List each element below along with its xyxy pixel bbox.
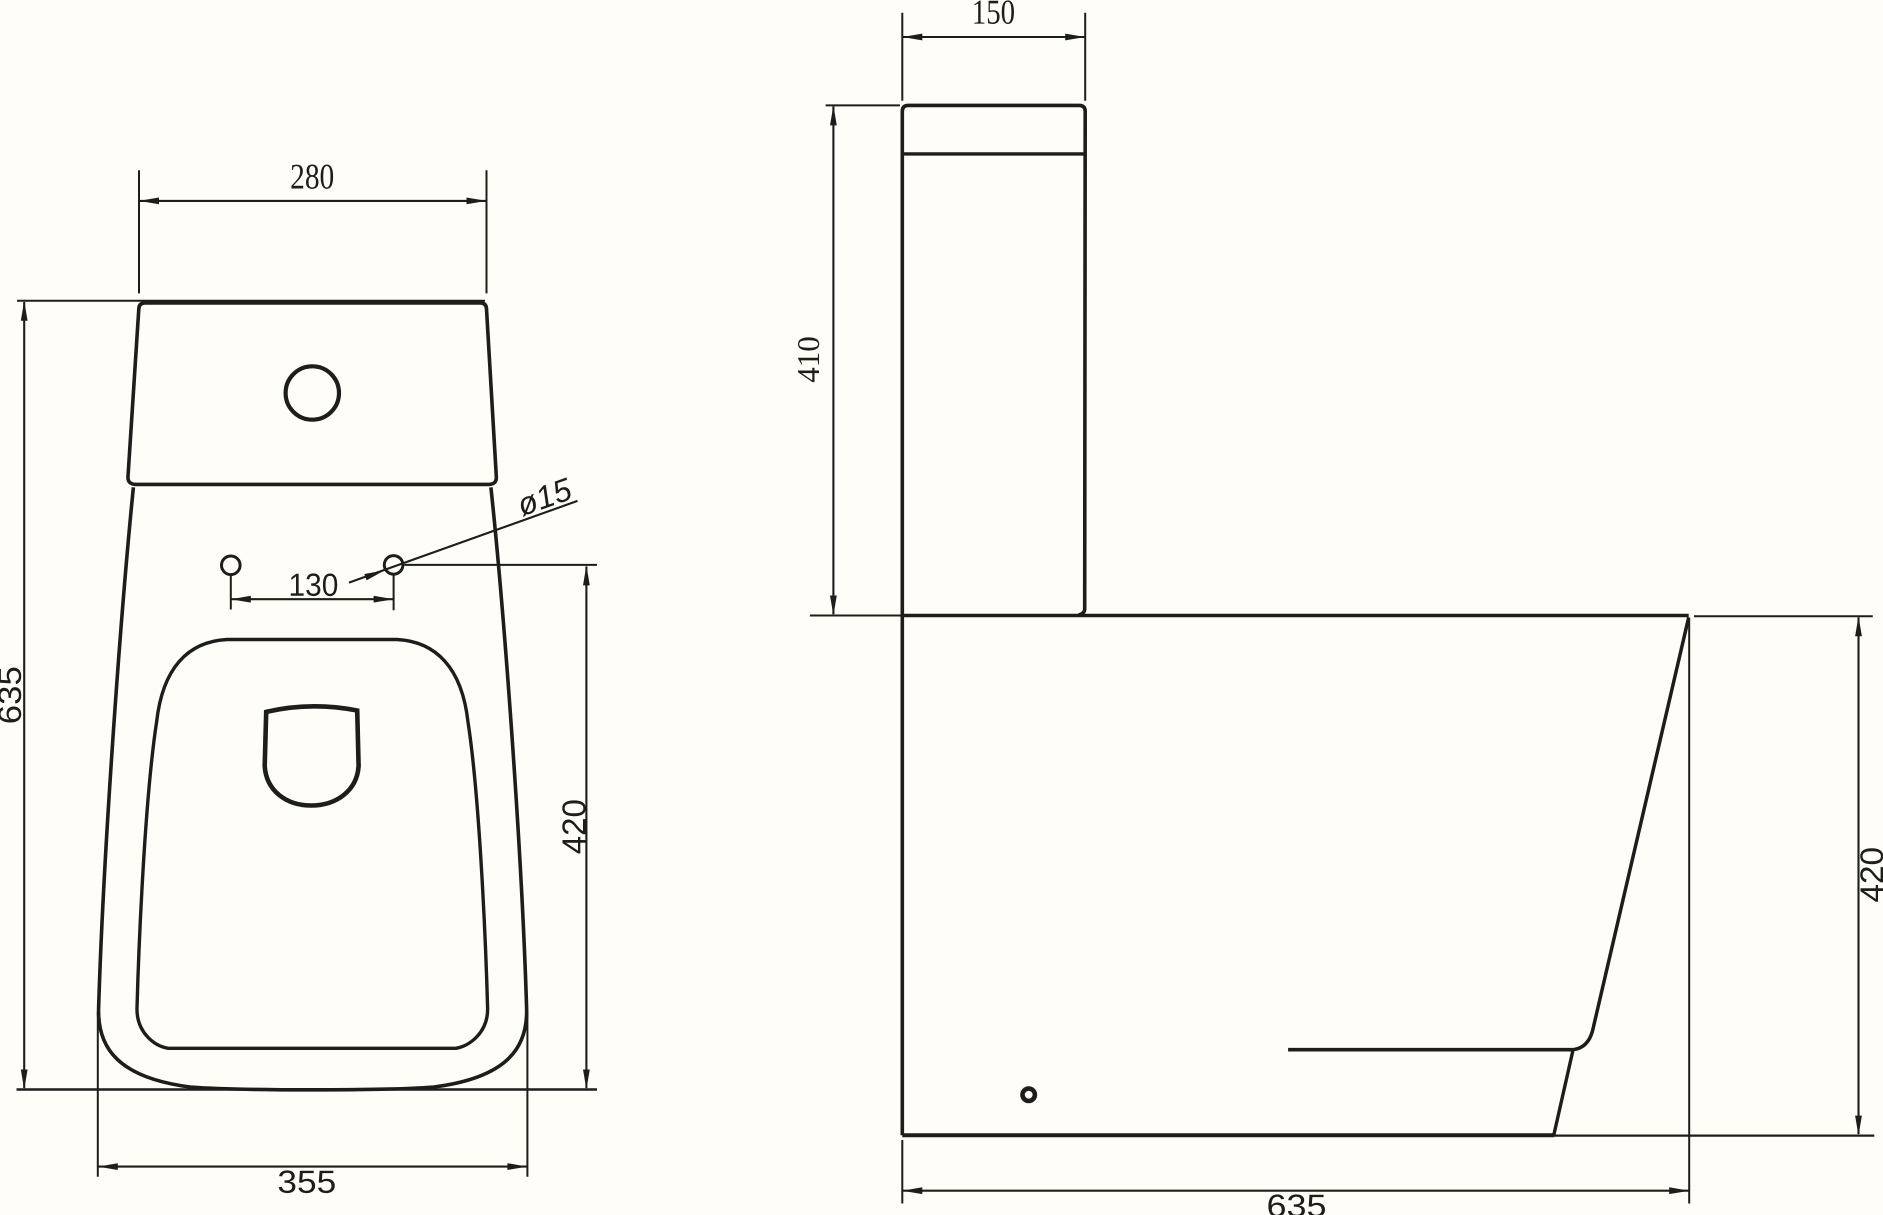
svg-text:635: 635	[0, 666, 28, 724]
svg-text:130: 130	[288, 567, 338, 603]
svg-text:420: 420	[1854, 847, 1883, 903]
svg-text:280: 280	[290, 157, 334, 197]
svg-text:410: 410	[790, 336, 826, 383]
svg-text:150: 150	[972, 0, 1015, 32]
svg-text:420: 420	[556, 799, 593, 854]
svg-text:355: 355	[277, 1164, 336, 1200]
svg-text:635: 635	[1266, 1188, 1326, 1215]
